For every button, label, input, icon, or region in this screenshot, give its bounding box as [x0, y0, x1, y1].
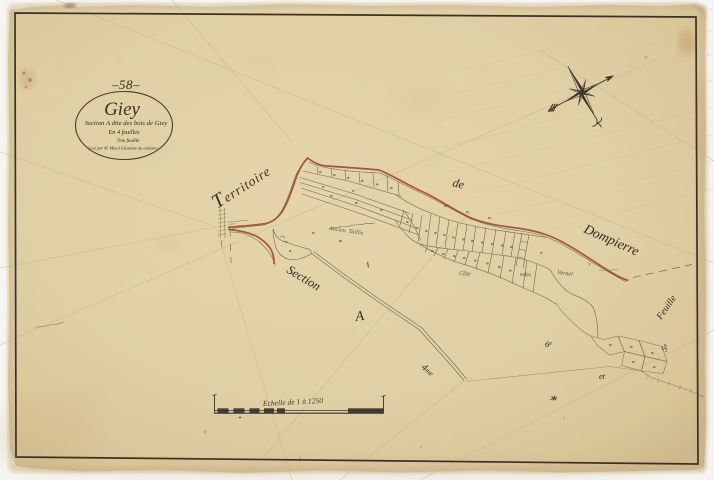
svg-text:Levé par M. Morel Géomètre du: Levé par M. Morel Géomètre du cadastre: [87, 146, 158, 151]
svg-text:7me feuille: 7me feuille: [117, 137, 141, 144]
svg-text:Section A dite des bois de Gie: Section A dite des bois de Giey: [85, 120, 168, 127]
svg-text:Côte: Côte: [459, 270, 471, 278]
svg-text:Giey: Giey: [104, 99, 140, 120]
svg-text:En 4 feuilles: En 4 feuilles: [108, 129, 141, 136]
svg-text:–58–: –58–: [111, 77, 140, 92]
svg-text:et: et: [599, 371, 606, 381]
svg-text:des: des: [523, 272, 532, 279]
